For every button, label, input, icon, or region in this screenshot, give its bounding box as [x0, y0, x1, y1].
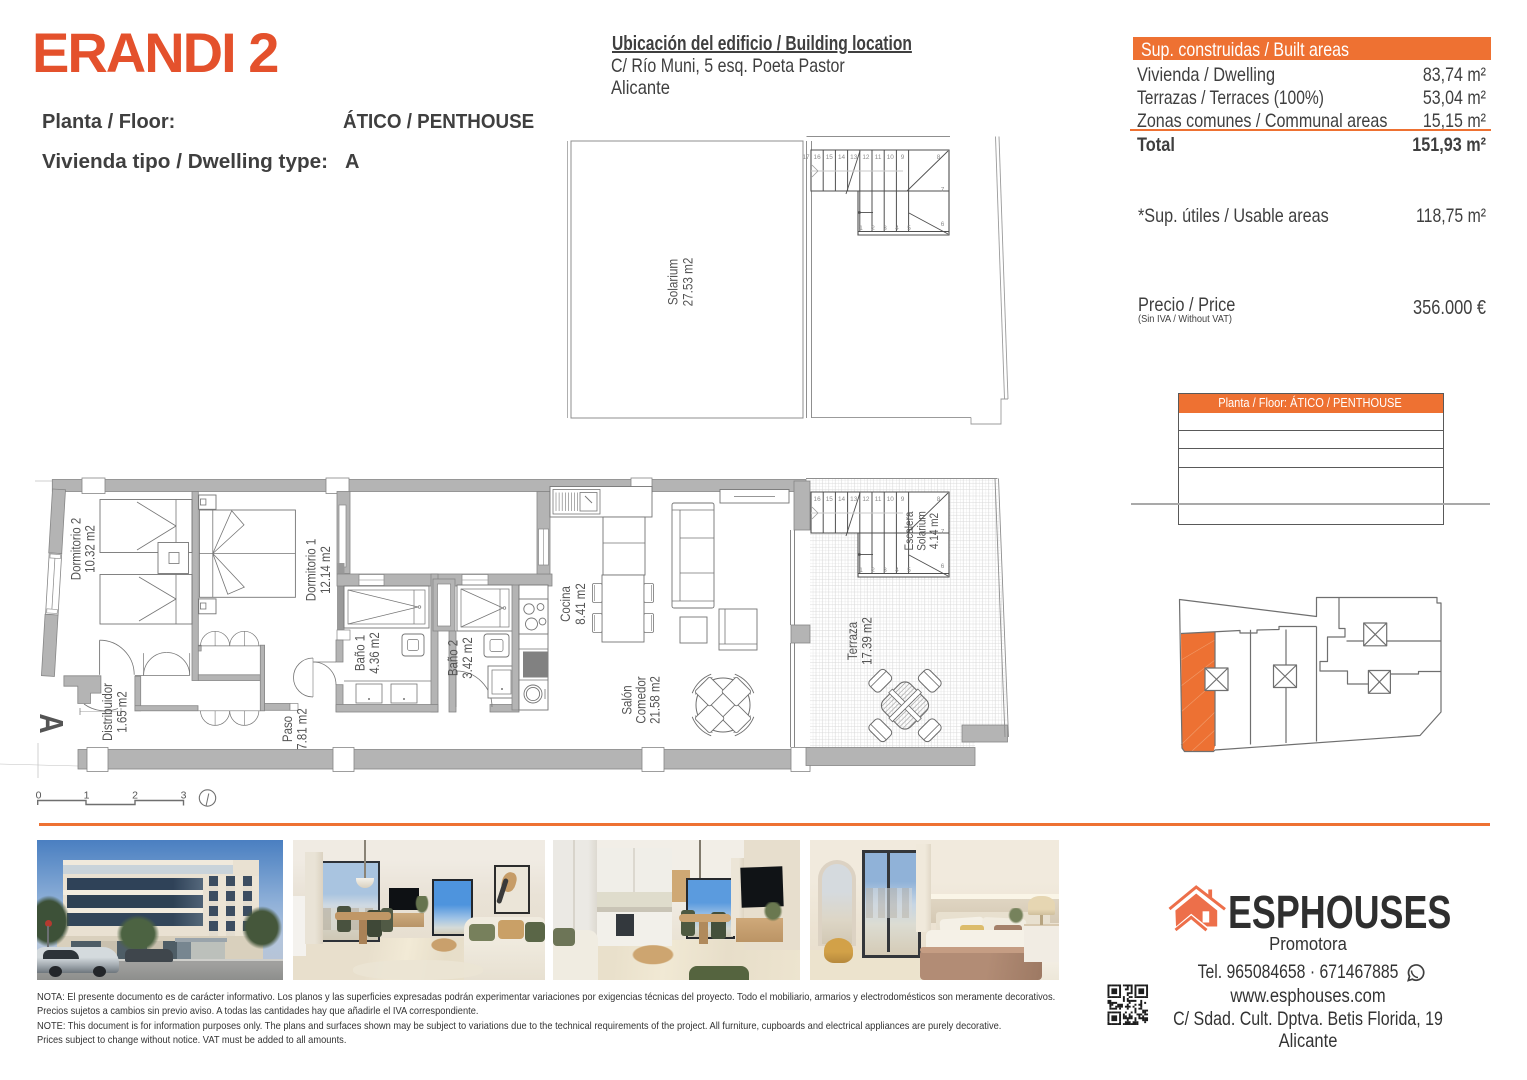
svg-text:16: 16 — [814, 154, 822, 161]
svg-text:7: 7 — [941, 529, 945, 536]
svg-text:17: 17 — [802, 154, 810, 161]
svg-text:13: 13 — [850, 496, 858, 503]
svg-text:Terraza: Terraza — [845, 622, 860, 660]
svg-text:3: 3 — [883, 567, 887, 574]
svg-text:16: 16 — [814, 496, 822, 503]
svg-text:10: 10 — [887, 496, 895, 503]
svg-text:17.39 m2: 17.39 m2 — [860, 617, 875, 665]
svg-text:12.14 m2: 12.14 m2 — [318, 546, 333, 594]
svg-text:7.81 m2: 7.81 m2 — [295, 708, 310, 749]
svg-text:Cocina: Cocina — [558, 586, 573, 622]
svg-text:13: 13 — [850, 154, 858, 161]
svg-text:6: 6 — [941, 563, 945, 570]
svg-text:4.36 m2: 4.36 m2 — [367, 632, 382, 673]
svg-text:4: 4 — [895, 225, 899, 232]
svg-text:2: 2 — [132, 790, 138, 802]
svg-text:3: 3 — [181, 790, 187, 802]
svg-text:8.41 m2: 8.41 m2 — [573, 583, 588, 624]
svg-text:11: 11 — [875, 496, 882, 503]
svg-text:4: 4 — [895, 567, 899, 574]
svg-text:15: 15 — [826, 496, 834, 503]
svg-text:Dormitorio 1: Dormitorio 1 — [304, 539, 319, 601]
svg-text:4.14 m2: 4.14 m2 — [928, 513, 941, 549]
svg-text:2: 2 — [871, 567, 875, 574]
svg-text:10: 10 — [887, 154, 895, 161]
svg-text:3.42 m2: 3.42 m2 — [460, 637, 475, 678]
svg-text:10.32 m2: 10.32 m2 — [83, 525, 98, 573]
svg-text:0: 0 — [36, 790, 42, 802]
svg-text:Escalera: Escalera — [903, 511, 916, 551]
svg-text:21.58 m2: 21.58 m2 — [648, 676, 663, 724]
svg-text:1.65 m2: 1.65 m2 — [115, 691, 130, 732]
svg-text:14: 14 — [838, 496, 846, 503]
svg-text:8: 8 — [937, 154, 941, 161]
svg-text:15: 15 — [826, 154, 834, 161]
svg-text:3: 3 — [883, 225, 887, 232]
svg-text:11: 11 — [875, 154, 882, 161]
svg-text:2: 2 — [871, 225, 875, 232]
svg-text:A: A — [32, 713, 69, 733]
svg-text:Baño 1: Baño 1 — [353, 635, 368, 671]
svg-text:5: 5 — [907, 225, 911, 232]
svg-text:8: 8 — [937, 496, 941, 503]
svg-text:14: 14 — [838, 154, 846, 161]
svg-text:5: 5 — [907, 567, 911, 574]
svg-text:Distribuidor: Distribuidor — [100, 683, 115, 741]
svg-text:Salón: Salón — [620, 685, 635, 714]
svg-text:6: 6 — [941, 221, 945, 228]
svg-text:1: 1 — [859, 225, 863, 232]
svg-text:1: 1 — [859, 567, 863, 574]
svg-text:7: 7 — [941, 187, 945, 194]
svg-text:27.53 m2: 27.53 m2 — [680, 258, 696, 307]
svg-text:Paso: Paso — [280, 716, 295, 742]
svg-text:Solarium: Solarium — [916, 511, 929, 551]
svg-text:12: 12 — [862, 154, 870, 161]
svg-text:Dormitorio 2: Dormitorio 2 — [69, 518, 84, 580]
svg-text:9: 9 — [901, 154, 905, 161]
svg-text:12: 12 — [862, 496, 870, 503]
svg-text:Solarium: Solarium — [665, 259, 681, 305]
svg-text:9: 9 — [901, 496, 905, 503]
svg-text:Baño 2: Baño 2 — [446, 640, 461, 676]
svg-text:1: 1 — [84, 790, 90, 802]
svg-text:Comedor: Comedor — [634, 676, 649, 723]
